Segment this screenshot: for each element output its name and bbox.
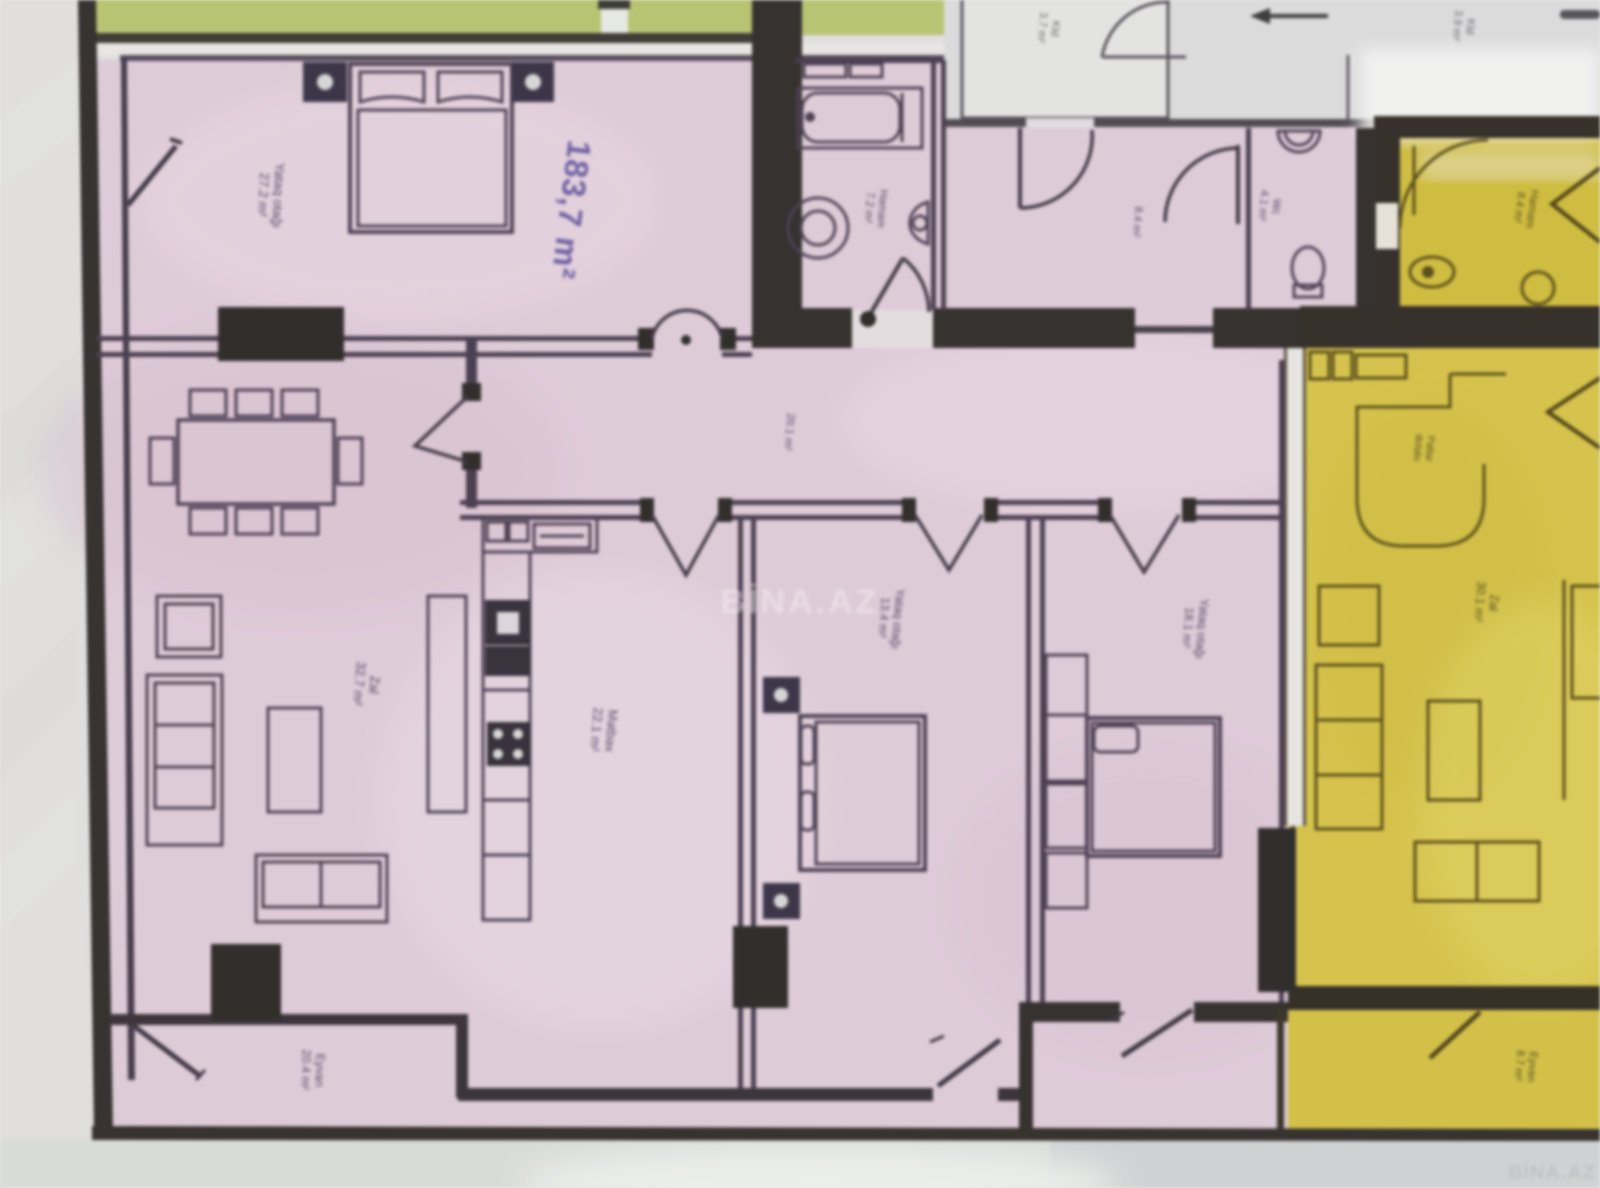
svg-text:Paltardolabı: Paltardolabı bbox=[1411, 434, 1436, 463]
svg-text:Eyvan20.4 m²: Eyvan20.4 m² bbox=[298, 1049, 327, 1091]
svg-text:Mətbəx22.1 m²: Mətbəx22.1 m² bbox=[587, 707, 621, 754]
svg-text:BİNA.AZ: BİNA.AZ bbox=[1508, 1161, 1596, 1184]
svg-text:Eyvan8.7 m²: Eyvan8.7 m² bbox=[1512, 1050, 1540, 1084]
svg-text:BİNA.AZ: BİNA.AZ bbox=[721, 583, 880, 621]
svg-text:Hamam7.2 m²: Hamam7.2 m² bbox=[861, 188, 889, 229]
